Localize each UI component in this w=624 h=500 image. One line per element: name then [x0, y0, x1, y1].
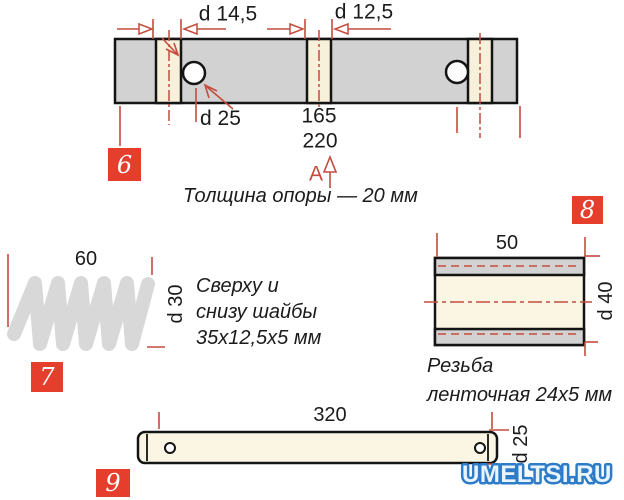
technical-drawing-page: d 14,5 d 12,5 d 25 165 220 A Толщина опо… — [0, 0, 624, 500]
site-watermark: UMELTSI.RU — [462, 461, 612, 488]
watermark-layer: UMELTSI.RU — [0, 0, 624, 500]
